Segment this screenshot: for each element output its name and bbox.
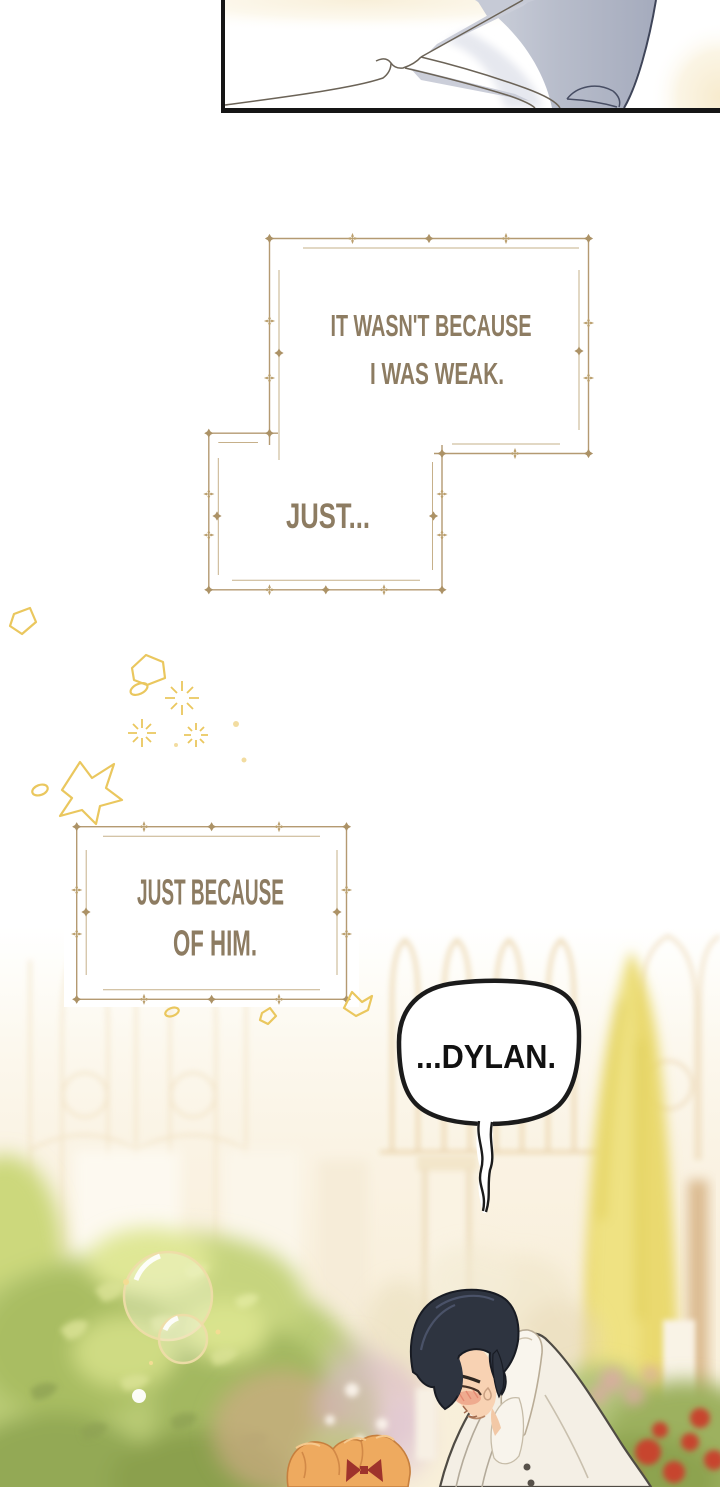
svg-text:OF HIM.: OF HIM. xyxy=(173,923,257,964)
svg-text:I WAS WEAK.: I WAS WEAK. xyxy=(370,356,504,391)
svg-text:IT WASN'T BECAUSE: IT WASN'T BECAUSE xyxy=(331,308,532,343)
svg-text:JUST...: JUST... xyxy=(286,497,370,536)
svg-text:JUST BECAUSE: JUST BECAUSE xyxy=(137,872,284,913)
